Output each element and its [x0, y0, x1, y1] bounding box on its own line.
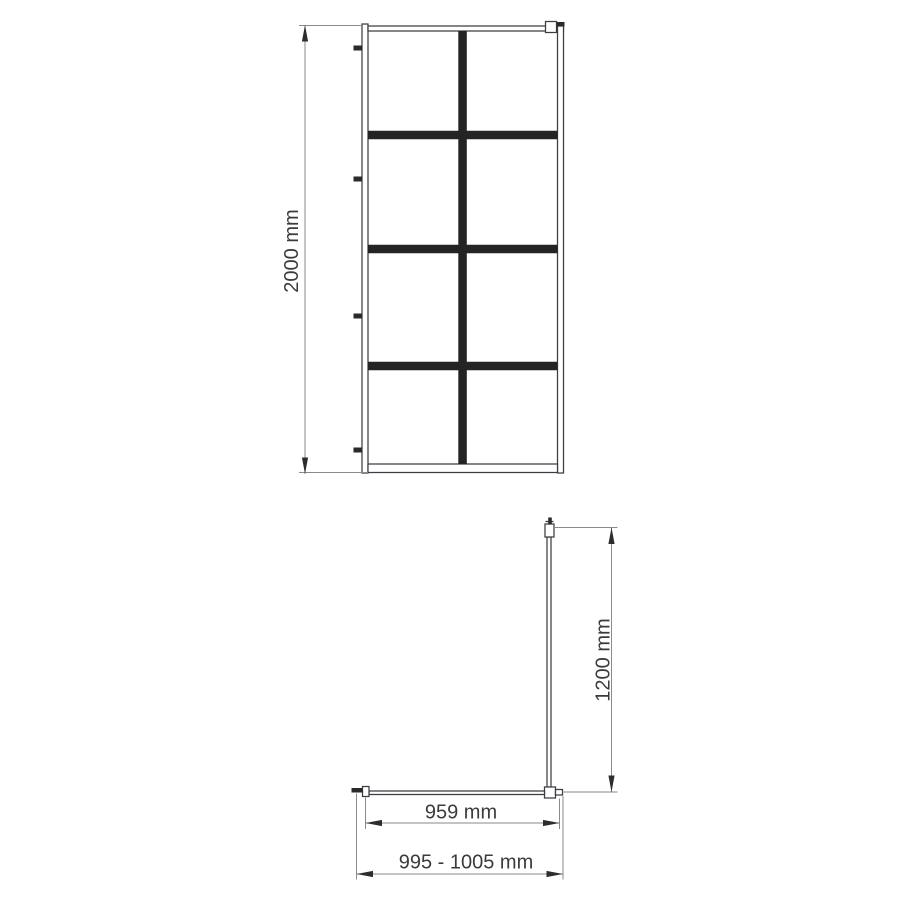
wall-tick-icon: [352, 788, 363, 793]
wall-profile: [362, 24, 368, 473]
depth-dimension-label: 1200 mm: [593, 618, 615, 701]
glass-width-dimension-label: 959 mm: [425, 802, 497, 824]
arrow-left-icon: [357, 871, 374, 877]
grid-bar-horizontal-3: [368, 362, 558, 371]
bottom-frame-rail: [368, 464, 558, 473]
arrow-down-icon: [608, 776, 614, 793]
bracket-pin-icon: [557, 22, 565, 27]
support-bar-bracket: [546, 22, 557, 33]
grid-bar-horizontal-1: [368, 131, 558, 140]
support-bar-wall-bracket: [545, 524, 554, 537]
wall-tick-icon: [354, 46, 363, 51]
arrow-up-icon: [608, 528, 614, 545]
arrow-down-icon: [302, 458, 308, 475]
drawing-canvas: 2000 mm: [0, 0, 900, 900]
depth-dimension: 1200 mm: [554, 528, 618, 793]
plan-view-hardware: [352, 518, 552, 793]
front-view: 2000 mm: [281, 22, 565, 475]
end-bracket-stub: [556, 790, 563, 796]
height-dimension-label: 2000 mm: [281, 209, 303, 292]
arrow-left-icon: [366, 820, 383, 826]
wall-tick-icon: [354, 448, 363, 453]
plan-view-parts: [363, 522, 563, 799]
arrow-up-icon: [302, 25, 308, 42]
wall-profile-plan: [363, 787, 370, 797]
installation-width-dimension-label: 995 - 1005 mm: [399, 852, 534, 874]
wall-tick-icon: [354, 314, 363, 319]
arrow-right-icon: [543, 820, 560, 826]
grid-bar-horizontal-2: [368, 245, 558, 254]
right-frame-edge: [558, 26, 564, 473]
glass-width-dimension: 959 mm: [366, 798, 560, 830]
wall-tick-icon: [354, 177, 363, 182]
top-frame-rail: [368, 26, 564, 31]
height-dimension: 2000 mm: [281, 25, 368, 474]
support-bar: [547, 537, 551, 787]
glass-panel-edge: [369, 791, 545, 795]
glass-grid-bars: [368, 31, 558, 464]
plan-view: 1200 mm 959 mm: [352, 518, 618, 880]
bracket-pin-icon: [548, 518, 552, 525]
arrow-right-icon: [547, 871, 564, 877]
glass-end-post: [545, 787, 556, 798]
shower-screen-technical-drawing: 2000 mm: [0, 0, 900, 900]
